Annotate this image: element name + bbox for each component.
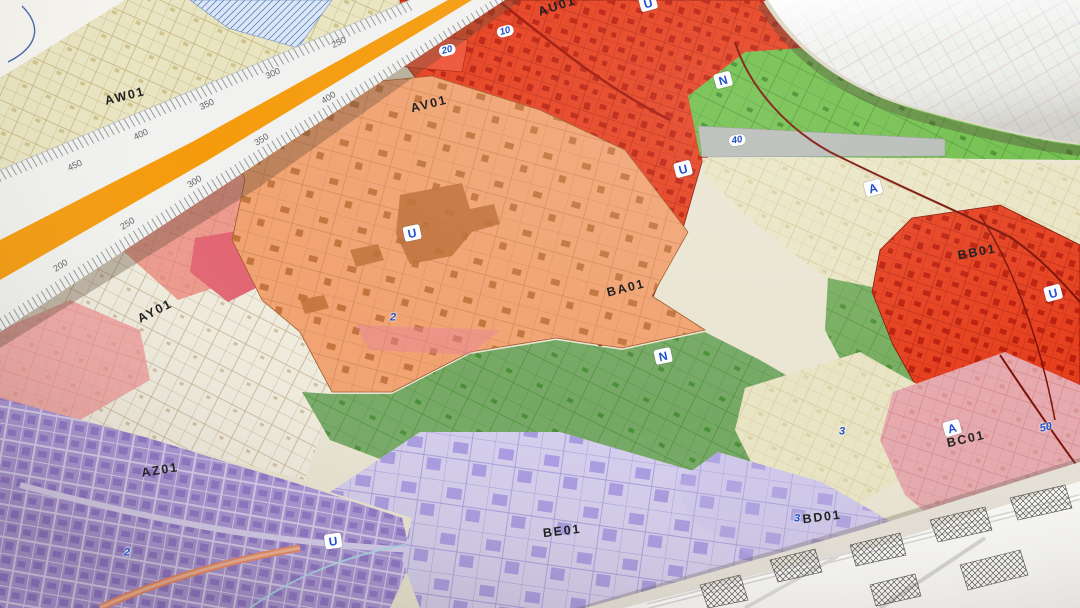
sector-label-av01: AV01	[409, 93, 449, 116]
zone-marker-u-bb01: U	[1043, 284, 1063, 303]
parcel-number-2-orange: 2	[390, 313, 396, 324]
zone-marker-u-purple: U	[324, 532, 343, 549]
sector-label-az01: AZ01	[140, 460, 179, 480]
map-labels: AW01 AU01 AV01 AY01 AZ01 BA01 BB01 BC01 …	[0, 0, 1080, 608]
zone-marker-u-orange: U	[402, 224, 421, 242]
parcel-number-20: 20	[438, 43, 457, 57]
zone-marker-n-topgreen: N	[713, 71, 733, 90]
zone-marker-u-red: U	[673, 160, 693, 179]
zone-marker-u-top: U	[638, 0, 658, 12]
parcel-number-3-bd01: 3	[794, 514, 800, 525]
sector-label-bd01: BD01	[802, 508, 842, 527]
photo-zoning-map: 250 300 350 400 450 200 250 300 350 400	[0, 0, 1080, 608]
zone-marker-a-cream: A	[863, 179, 883, 198]
zone-marker-n-centergreen: N	[653, 347, 672, 365]
parcel-number-40: 40	[728, 133, 746, 146]
parcel-number-10: 10	[496, 24, 515, 38]
parcel-number-3-cream: 3	[839, 427, 845, 438]
sector-label-aw01: AW01	[103, 84, 146, 108]
sector-label-be01: BE01	[542, 522, 582, 541]
parcel-number-2-purple: 2	[124, 548, 130, 559]
sector-label-ba01: BA01	[605, 276, 646, 299]
sector-label-bb01: BB01	[957, 241, 998, 262]
sector-label-au01: AU01	[536, 0, 577, 19]
parcel-number-50: 50	[1039, 421, 1053, 434]
sector-label-ay01: AY01	[135, 296, 174, 325]
